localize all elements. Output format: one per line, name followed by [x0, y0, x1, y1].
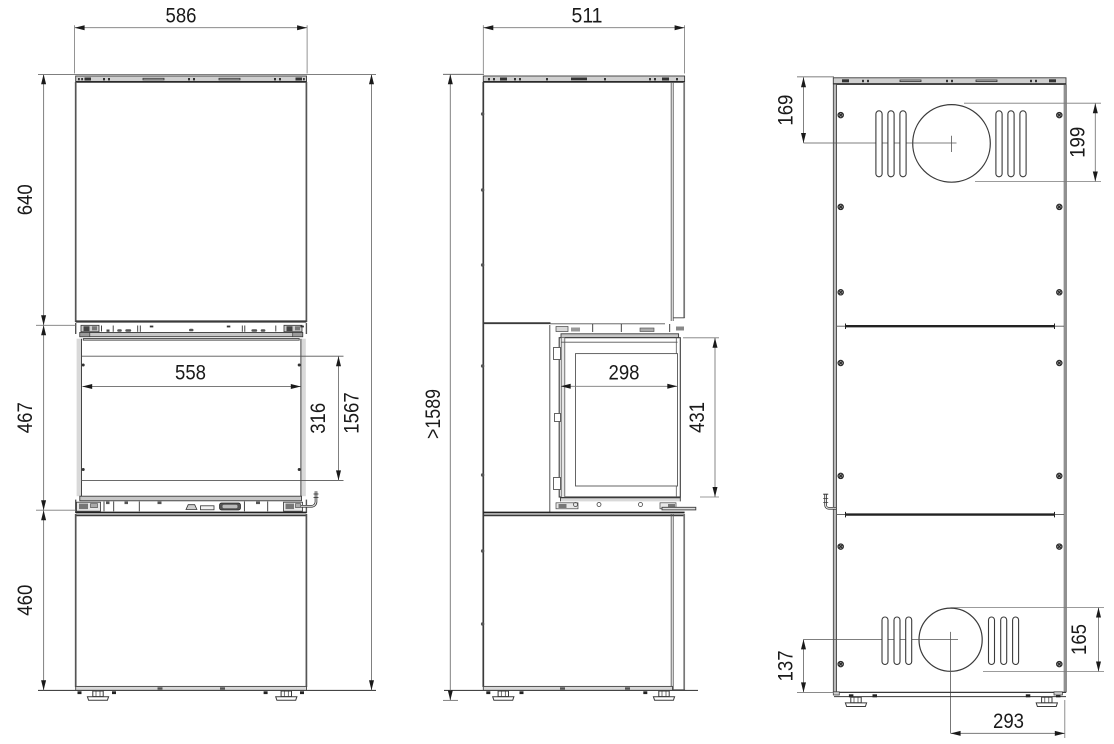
svg-text:137: 137: [775, 650, 798, 681]
svg-text:199: 199: [1067, 127, 1090, 158]
svg-text:467: 467: [14, 402, 37, 433]
svg-text:511: 511: [572, 4, 603, 27]
svg-text:316: 316: [307, 403, 330, 434]
svg-text:640: 640: [14, 184, 37, 215]
svg-text:165: 165: [1068, 624, 1091, 655]
svg-text:431: 431: [686, 402, 709, 433]
svg-text:586: 586: [166, 4, 197, 27]
svg-text:293: 293: [993, 710, 1024, 733]
svg-text:>1589: >1589: [422, 389, 445, 439]
svg-text:298: 298: [609, 362, 640, 385]
svg-text:558: 558: [175, 362, 206, 385]
svg-text:169: 169: [775, 95, 798, 126]
svg-text:1567: 1567: [341, 392, 364, 434]
svg-text:460: 460: [14, 585, 37, 616]
